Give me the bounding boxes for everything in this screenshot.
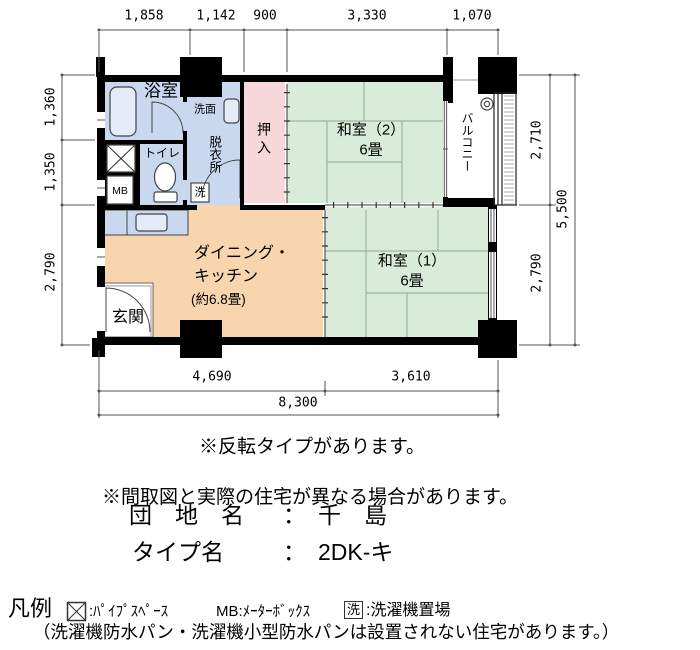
toilet-label: トイレ: [144, 147, 180, 159]
closet-label: 押入: [257, 122, 271, 158]
dim-top-2: 1,142: [196, 10, 235, 23]
dim-bottom-2: 3,610: [391, 371, 430, 384]
estate-name-colon: ：: [283, 504, 306, 527]
washbasin-label: 洗面: [194, 105, 216, 116]
estate-type-value: 2DK-キ: [318, 541, 393, 564]
note-flip: ※反転タイプがあります。: [199, 438, 425, 457]
estate-name-value: 千 島: [318, 504, 387, 527]
dim-top-5: 1,070: [452, 10, 491, 23]
dim-top-4: 3,330: [347, 10, 386, 23]
washitsu1-size: 6畳: [400, 274, 423, 289]
legend-note: （洗濯機防水パン・洗濯機小型防水パンは設置されない住宅があります。）: [33, 624, 619, 642]
dim-bottom-total: 8,300: [278, 397, 317, 410]
estate-name-label: 団 地 名: [129, 504, 244, 527]
washitsu2-label: 和室（2）: [337, 123, 405, 138]
balcony-bottom-wall: [443, 198, 495, 207]
bath-label: 浴室: [144, 83, 178, 100]
legend-mb-label: MB:ﾒｰﾀｰﾎﾞｯｸｽ: [216, 604, 310, 619]
pillar-bottom-right: [478, 320, 517, 358]
dk-label-line3: (約6.8畳): [191, 293, 246, 307]
legend-washer-icon: 洗: [344, 601, 363, 619]
estate-type-colon: ：: [283, 541, 306, 564]
balcony-label: バルコニー: [461, 112, 473, 172]
floor-plan-page: 1,858 1,142 900 3,330 1,070 1,360 1,350 …: [0, 0, 700, 650]
dim-right-total: 5,500: [557, 189, 570, 228]
pillar-bottom-mid: [180, 320, 222, 358]
dim-right-2: 2,790: [531, 253, 544, 292]
dim-bottom-1: 4,690: [192, 371, 231, 384]
legend-ps-label: :ﾊﾟｲﾌﾟｽﾍﾟｰｽ: [89, 604, 168, 619]
estate-type-label: タイプ名: [132, 541, 224, 564]
toilet-tank: [154, 192, 177, 202]
legend-title: 凡例: [8, 598, 52, 620]
balcony-railing: [494, 92, 517, 205]
pillar-top-right: [478, 57, 517, 94]
dk-label-line2: キッチン: [194, 269, 258, 285]
dim-top-3: 900: [253, 10, 276, 23]
washer-space-label: 洗: [195, 188, 206, 199]
dim-right-1: 2,710: [531, 120, 544, 159]
washitsu1-label: 和室（1）: [378, 254, 446, 269]
pipe-space-legend-icon: [66, 601, 87, 622]
dim-left-3: 2,790: [45, 252, 58, 291]
balcony-faucet-icon-inner: [484, 101, 489, 106]
dim-left-2: 1,350: [45, 152, 58, 191]
dk-label-line1: ダイニング・: [194, 246, 290, 262]
dim-top-1: 1,858: [124, 10, 163, 23]
dim-left-1: 1,360: [45, 87, 58, 126]
washbasin-sink: [224, 99, 239, 123]
meter-box-label: MB: [112, 186, 128, 197]
legend-washer-label: :洗濯機置場: [366, 603, 450, 619]
kitchen-sink: [136, 214, 167, 231]
dressing-label: 脱衣所: [208, 135, 221, 173]
toilet-bowl: [155, 163, 176, 191]
bathtub: [110, 87, 136, 136]
genkan-label: 玄関: [112, 310, 144, 326]
washitsu2-size: 6畳: [359, 143, 382, 158]
